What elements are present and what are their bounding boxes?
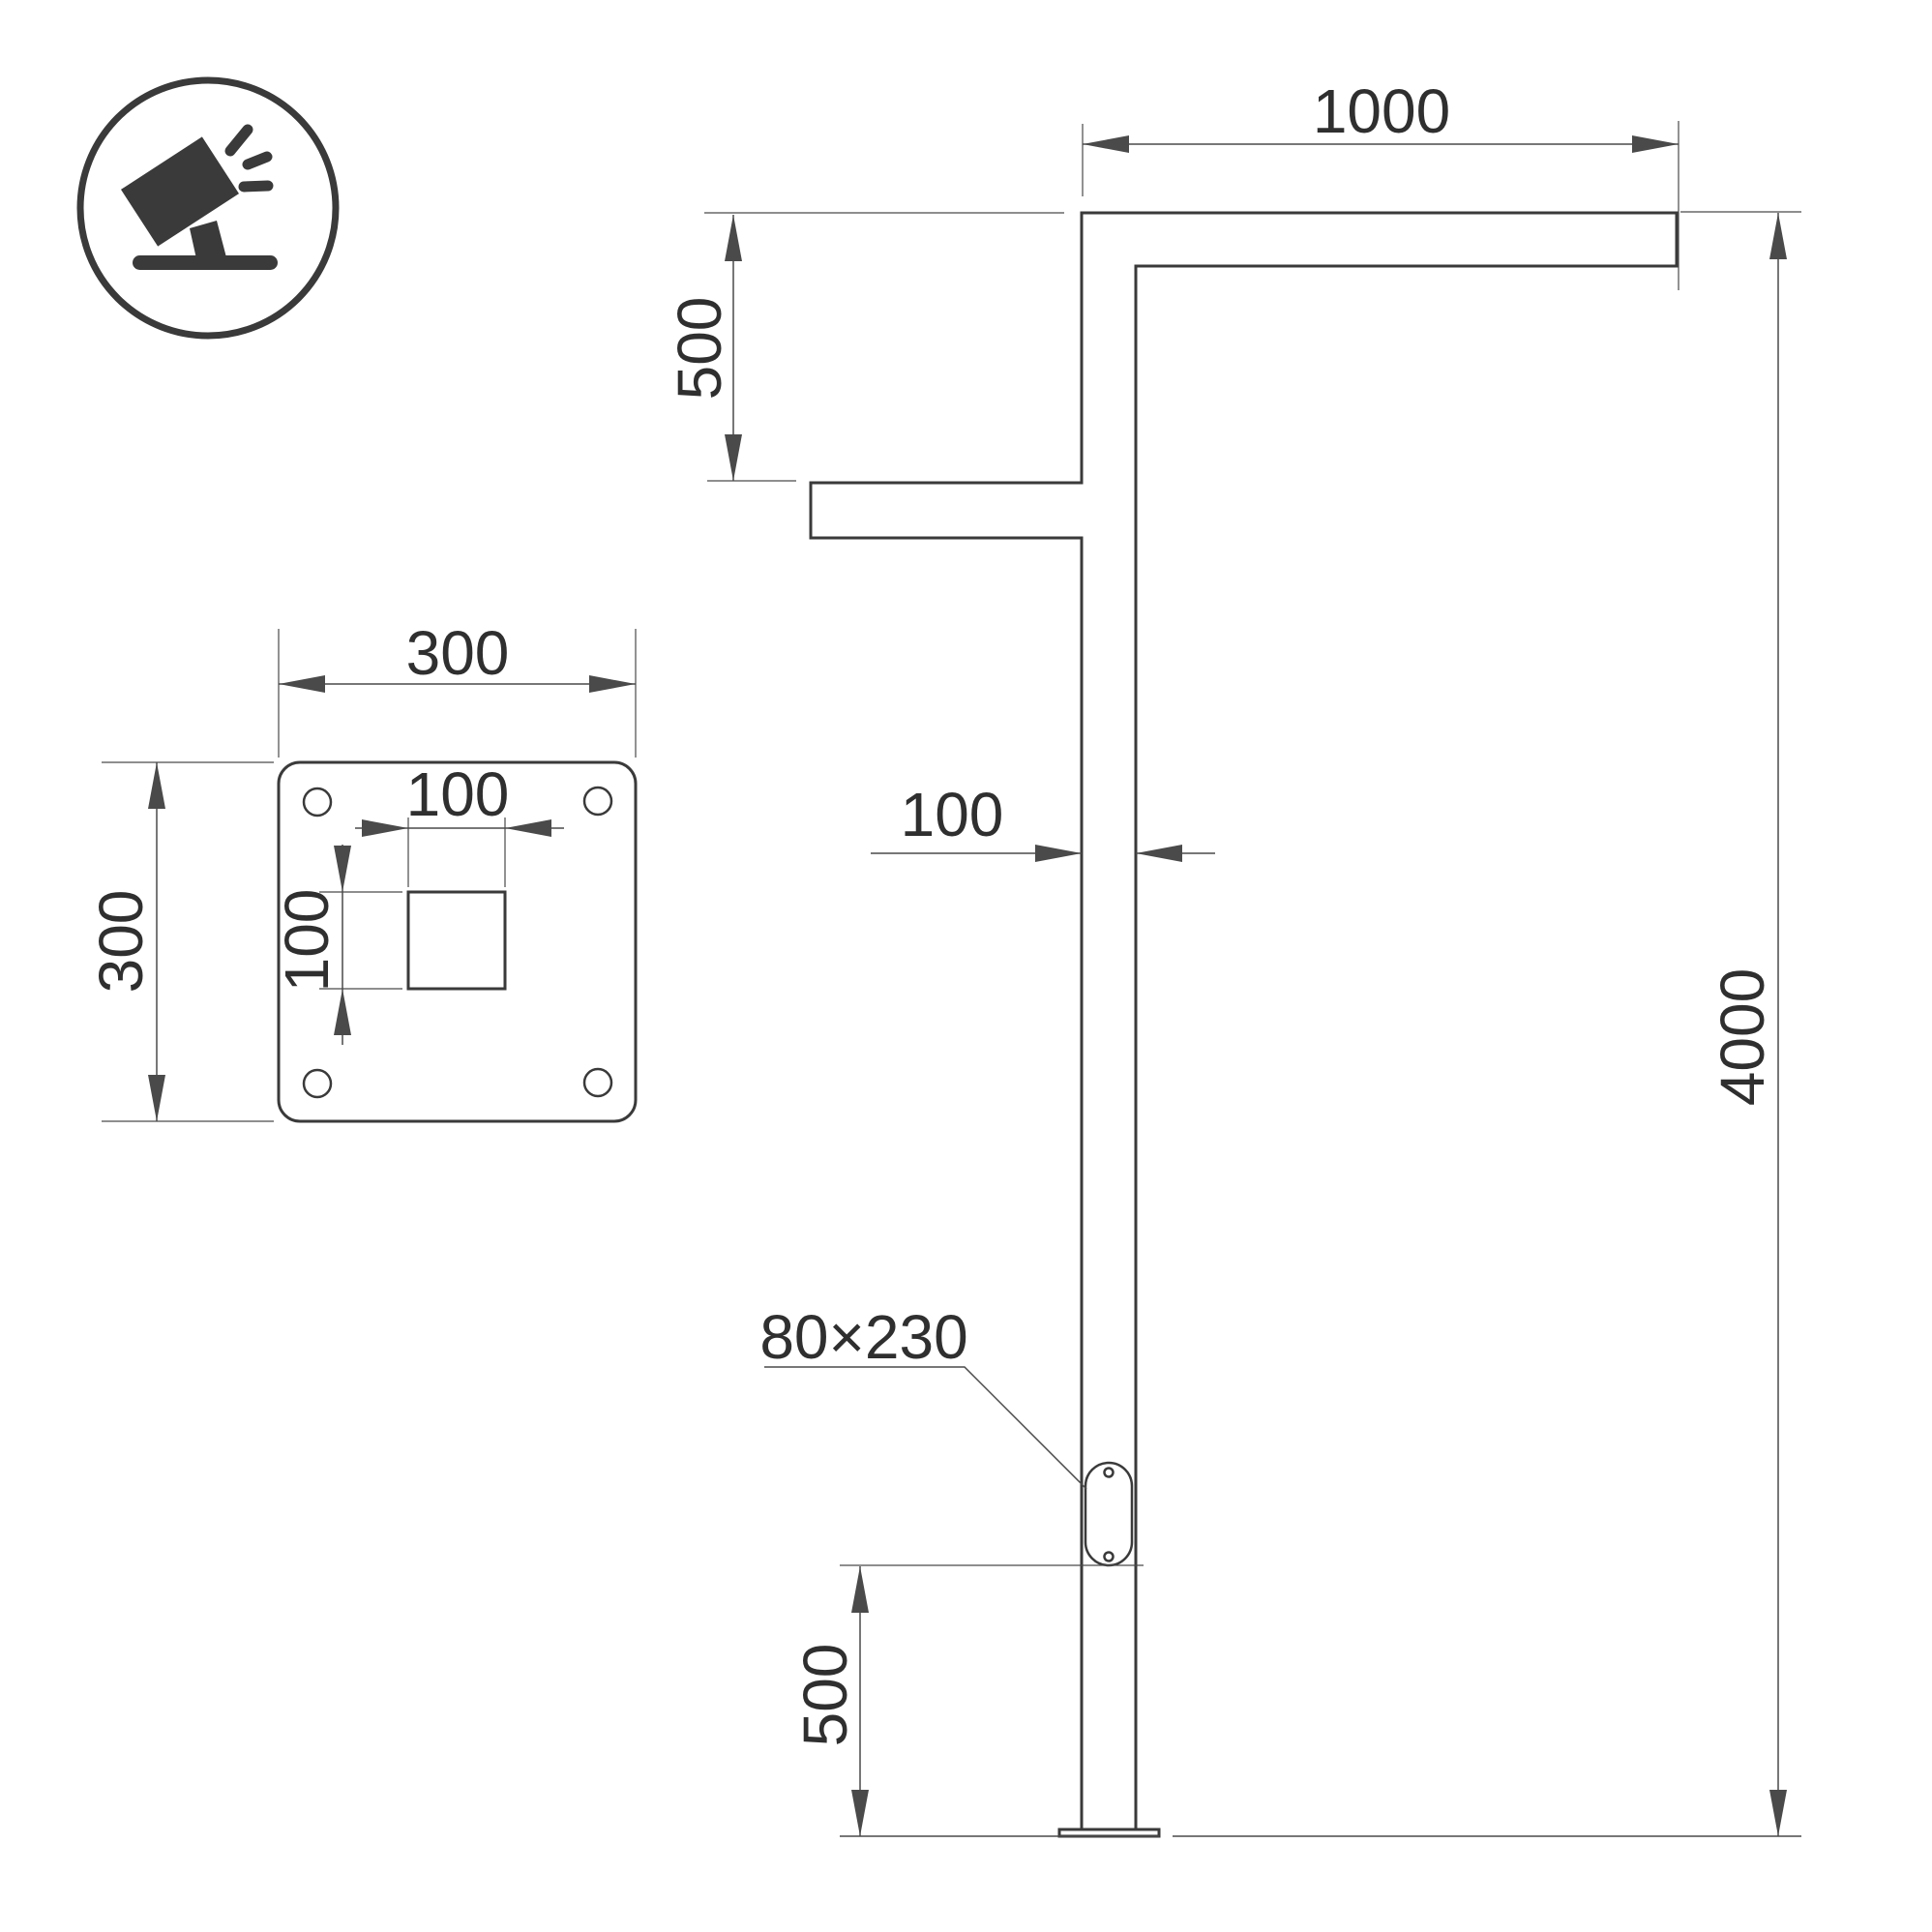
- floodlight-icon: [80, 80, 336, 336]
- dim-plate-width: 300: [279, 618, 636, 758]
- dim-hand-hole-offset-value: 500: [790, 1644, 860, 1747]
- dim-plate-height: 300: [86, 762, 274, 1121]
- dim-arm-length-value: 1000: [1313, 76, 1450, 146]
- dim-socket-height-value: 100: [272, 889, 342, 993]
- dim-arm-drop-value: 500: [665, 297, 734, 401]
- dim-total-height: 4000: [1680, 212, 1801, 1836]
- hand-hole-label: 80×230: [759, 1302, 967, 1372]
- dim-pole-width-value: 100: [901, 780, 1004, 849]
- base-flange: [1059, 1829, 1159, 1836]
- dim-socket-width-value: 100: [406, 759, 510, 829]
- floodlight-base-icon: [133, 255, 278, 270]
- technical-drawing-page: 300 300 100 100: [0, 0, 1932, 1932]
- bolt-hole-bottom-right: [584, 1069, 611, 1096]
- dim-pole-width: 100: [871, 780, 1215, 862]
- dim-total-height-value: 4000: [1708, 968, 1777, 1106]
- base-plate-plan-view: 300 300 100 100: [86, 618, 636, 1121]
- hand-hole-leader-line: [764, 1367, 1086, 1489]
- bolt-hole-top-left: [304, 788, 331, 816]
- dim-socket-height: 100: [272, 845, 402, 1045]
- floodlight-body-icon: [121, 136, 239, 246]
- dim-socket-width: 100: [355, 759, 564, 887]
- light-rays-icon: [230, 130, 268, 187]
- drawing-canvas: 300 300 100 100: [0, 0, 1932, 1932]
- hand-hole: [1085, 1463, 1132, 1565]
- pole-outline: [811, 213, 1677, 1829]
- dim-arm-drop: 500: [665, 213, 1064, 481]
- pole-socket-outline: [408, 892, 505, 989]
- pole-elevation-view: 1000 500 100 4000: [665, 76, 1801, 1836]
- dim-plate-height-value: 300: [86, 890, 156, 994]
- dim-plate-width-value: 300: [406, 618, 510, 688]
- bolt-hole-bottom-left: [304, 1070, 331, 1097]
- bolt-hole-top-right: [584, 788, 611, 815]
- hand-hole-callout: 80×230: [759, 1302, 1086, 1489]
